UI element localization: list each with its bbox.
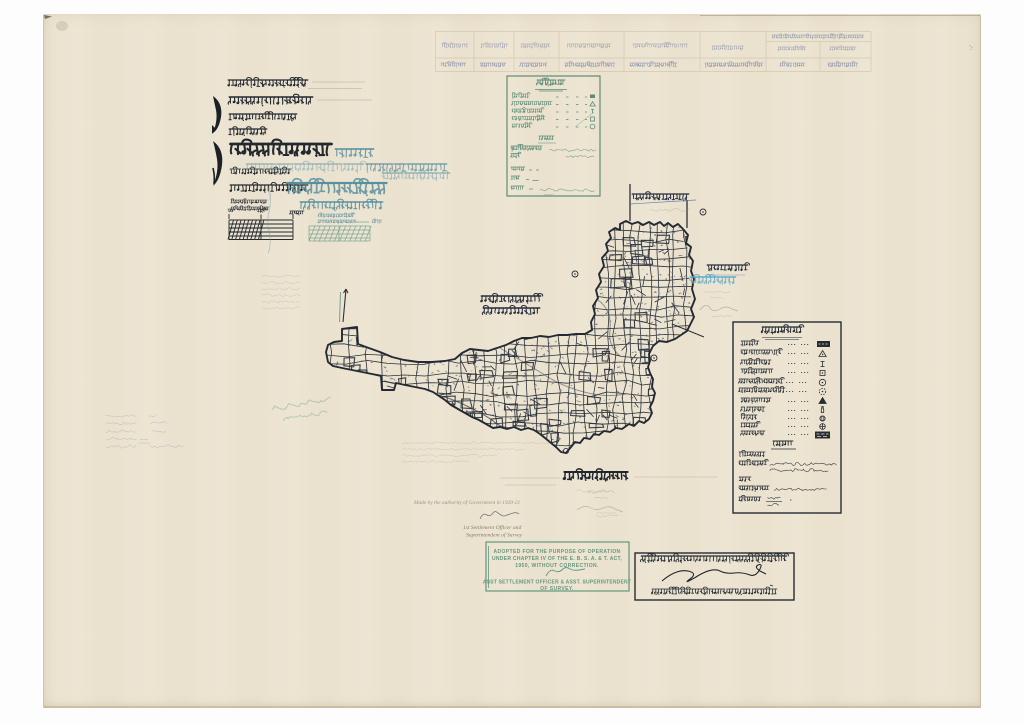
svg-text:ADOPTED FOR THE PURPOSE OF OPE: ADOPTED FOR THE PURPOSE OF OPERATION — [493, 549, 620, 555]
svg-text:Made by the authority of Gover: Made by the authority of Government in 1… — [413, 499, 520, 506]
svg-text:1st Settlement Officer and: 1st Settlement Officer and — [463, 524, 521, 531]
svg-text:ASST SETTLEMENT OFFICER & ASST: ASST SETTLEMENT OFFICER & ASST. SUPERINT… — [483, 580, 631, 586]
svg-text:OF SURVEY.: OF SURVEY. — [540, 586, 574, 592]
svg-text:1950, WITHOUT CORRECTION.: 1950, WITHOUT CORRECTION. — [515, 563, 599, 569]
svg-text:Superintendent of Survey: Superintendent of Survey — [466, 532, 523, 539]
svg-text:UNDER CHAPTER IV OF THE E. B.: UNDER CHAPTER IV OF THE E. B. S. A. & T.… — [492, 556, 622, 562]
